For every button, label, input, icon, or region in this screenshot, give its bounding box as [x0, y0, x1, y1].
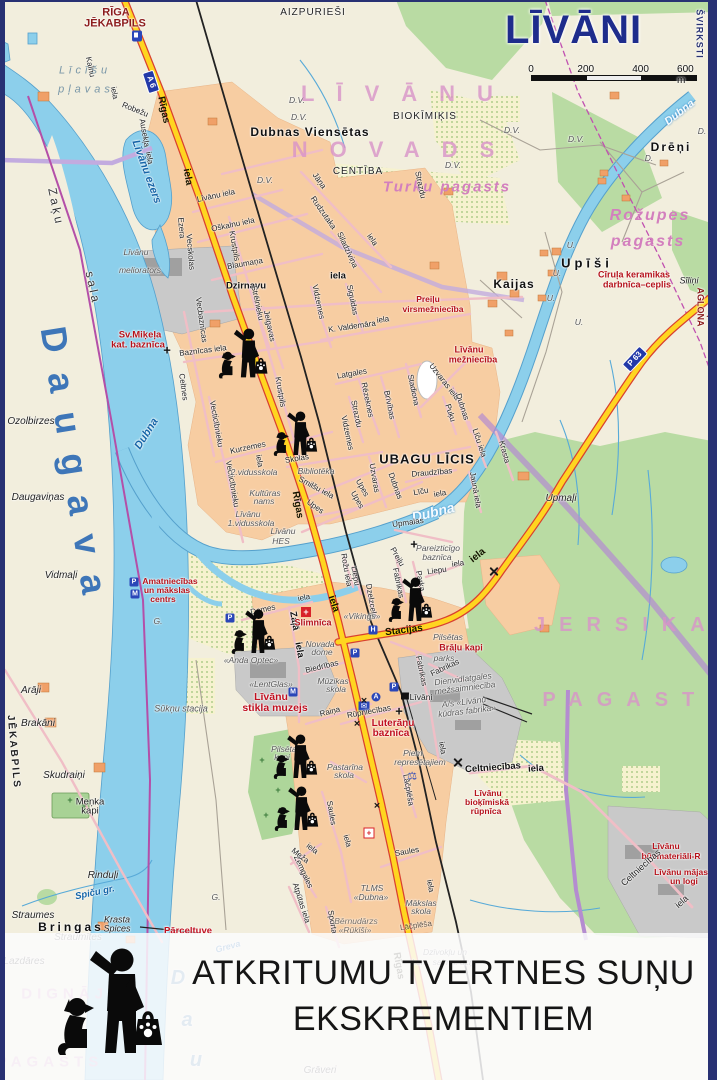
- map-border-right: [708, 0, 717, 1080]
- dog-waste-bin-marker: [273, 410, 323, 460]
- map-border-top: [0, 0, 717, 2]
- dog-waste-icon: [56, 945, 176, 1065]
- banner-title-line2: EKSKREMENTIEM: [178, 997, 709, 1043]
- livani-map-poster: LĪVĀNI 0 200 400 600 m PPPPMMHA✉+++++⚖++…: [0, 0, 717, 1080]
- dog-waste-bin-marker: [388, 576, 438, 626]
- banner-title: ATKRITUMU TVERTNES SUŅU EKSKREMENTIEM: [178, 951, 709, 1043]
- dog-waste-bin-marker: [218, 327, 274, 383]
- dog-waste-bin-marker: [273, 733, 323, 783]
- dog-waste-bin-marker: [274, 785, 324, 835]
- marker-layer: [0, 0, 717, 1080]
- dog-waste-bin-marker: [231, 608, 281, 658]
- map-border-left: [0, 0, 5, 1080]
- banner: ATKRITUMU TVERTNES SUŅU EKSKREMENTIEM: [0, 933, 717, 1080]
- banner-title-line1: ATKRITUMU TVERTNES SUŅU: [178, 951, 709, 997]
